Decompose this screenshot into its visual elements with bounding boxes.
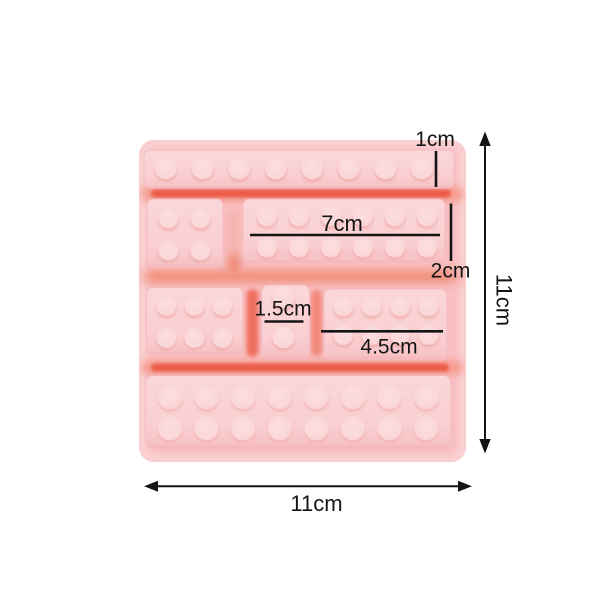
svg-text:1.5cm: 1.5cm xyxy=(254,298,311,321)
svg-text:11cm: 11cm xyxy=(492,274,517,326)
svg-text:11cm: 11cm xyxy=(290,491,342,516)
svg-text:1cm: 1cm xyxy=(415,128,455,151)
svg-text:4.5cm: 4.5cm xyxy=(360,336,417,359)
svg-text:2cm: 2cm xyxy=(431,260,471,283)
svg-text:7cm: 7cm xyxy=(321,211,363,236)
